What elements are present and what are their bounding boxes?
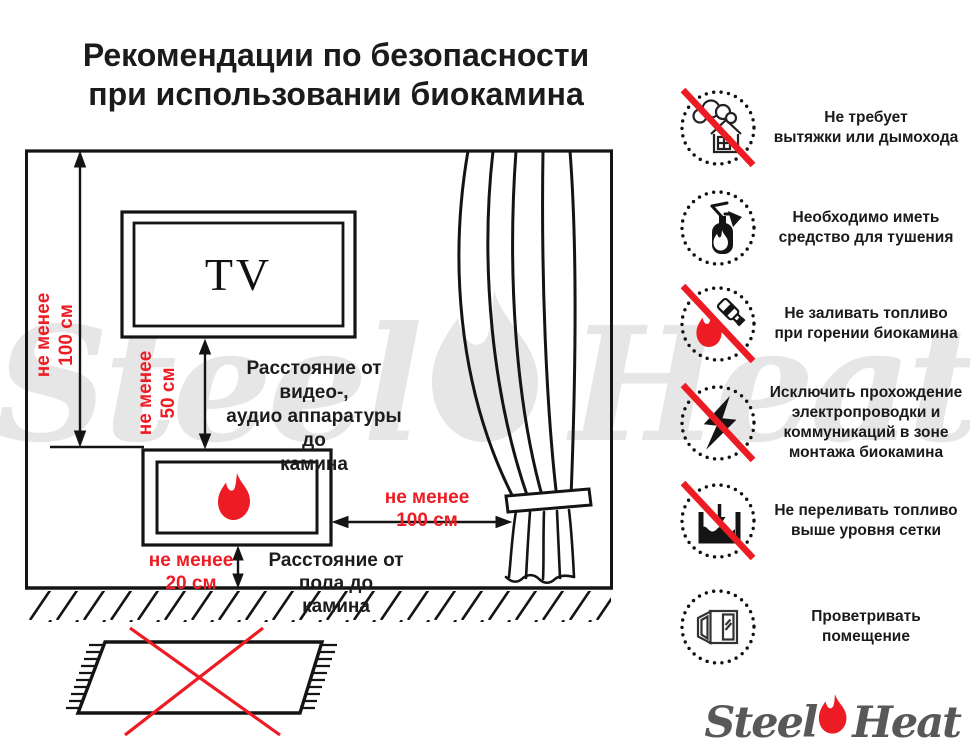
- logo-steel: Steel: [704, 702, 816, 745]
- no-chimney-icon: [676, 86, 760, 170]
- rule-item-no-wiring: Исключить прохождение электропроводки и …: [676, 381, 964, 465]
- dim-tv-to-fireplace: не менее 50 см: [134, 351, 180, 436]
- extinguisher-icon: [676, 186, 760, 270]
- rule-caption: Исключить прохождение электропроводки и …: [768, 383, 964, 463]
- rule-item-extinguisher: Необходимо иметь средство для тушения: [676, 186, 964, 270]
- dim-floor-to-fireplace: не менее 20 см: [146, 549, 236, 595]
- steelheat-logo: Steel Heat: [704, 693, 960, 745]
- title-line-1: Рекомендации по безопасности: [83, 37, 589, 73]
- rug: [66, 628, 337, 735]
- page-title: Рекомендации по безопасности при использ…: [0, 36, 672, 114]
- rule-item-no-chimney: Не требует вытяжки или дымохода: [676, 86, 964, 170]
- rule-caption: Не заливать топливо при горении биокамин…: [768, 304, 964, 344]
- label-floor-distance: Расстояние от пола до камина: [246, 549, 426, 618]
- logo-heat: Heat: [852, 702, 960, 745]
- max-fuel-level-icon: [676, 479, 760, 563]
- no-wiring-icon: [676, 381, 760, 465]
- rule-caption: Не переливать топливо выше уровня сетки: [768, 501, 964, 541]
- ventilate-window-icon: [676, 585, 760, 669]
- rule-item-no-refuel: Не заливать топливо при горении биокамин…: [676, 282, 964, 366]
- rule-caption: Не требует вытяжки или дымохода: [768, 108, 964, 148]
- rule-caption: Проветривать помещение: [768, 607, 964, 647]
- dim-fireplace-to-curtain: не менее 100 см: [367, 486, 487, 532]
- title-line-2: при использовании биокамина: [88, 76, 584, 112]
- tv-label: TV: [122, 212, 355, 337]
- no-refuel-while-burning-icon: [676, 282, 760, 366]
- dim-wall-to-fireplace: не менее 100 см: [32, 293, 78, 378]
- rule-caption: Необходимо иметь средство для тушения: [768, 208, 964, 248]
- label-av-distance: Расстояние от видео-, аудио аппаратуры д…: [212, 357, 416, 477]
- logo-flame-icon: [817, 693, 853, 745]
- rule-item-ventilate: Проветривать помещение: [676, 585, 964, 669]
- rule-item-fuel-level: Не переливать топливо выше уровня сетки: [676, 479, 964, 563]
- safety-poster: Steel Heat Рекомендации по безопасности …: [0, 0, 970, 749]
- curtain-tie-band: [506, 489, 591, 512]
